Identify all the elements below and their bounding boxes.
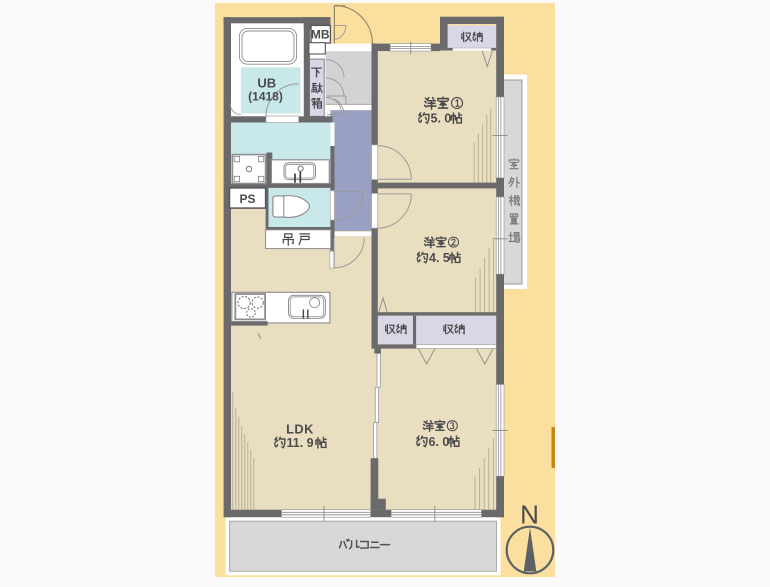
svg-text:MB: MB bbox=[311, 28, 330, 42]
svg-text:6. 0: 6. 0 bbox=[429, 435, 450, 449]
svg-text:LDK: LDK bbox=[286, 421, 314, 436]
svg-text:5. 0: 5. 0 bbox=[431, 112, 452, 126]
svg-text:(1418): (1418) bbox=[248, 89, 283, 103]
svg-text:PS: PS bbox=[239, 192, 255, 206]
svg-text:UB: UB bbox=[257, 75, 276, 90]
svg-text:4. 5: 4. 5 bbox=[429, 251, 450, 265]
svg-text:N: N bbox=[520, 500, 539, 530]
svg-text:11. 9: 11. 9 bbox=[287, 436, 314, 450]
